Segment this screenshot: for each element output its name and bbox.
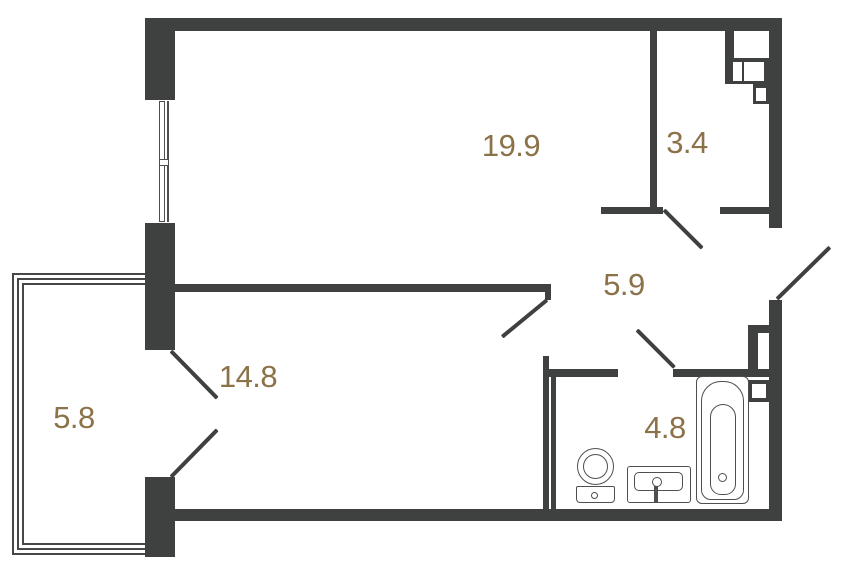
room-label-hallway: 5.9 [603,267,645,303]
wall-bottom [175,509,782,521]
shaft-opening-small-right [744,62,764,81]
bedroom-door-swing [501,298,548,338]
shaft-opening-large [734,31,769,58]
balcony-door-swing-lower [170,428,219,478]
shaft-box-lower-opening [756,88,766,101]
wall-duct-niche-left [748,333,758,369]
floor-plan: 19.9 3.4 5.9 14.8 5.8 4.8 [0,0,855,566]
wall-divider-livingroom-bedroom [175,284,551,292]
wall-right-upper [769,18,782,228]
room-label-storage: 3.4 [666,125,708,161]
room-label-balcony: 5.8 [53,400,95,436]
wall-stub-bedroom-door [545,284,551,300]
toilet-bowl-inner [583,454,608,479]
wall-bathroom-left-outer [543,356,549,509]
wall-hallway-top-right [720,207,769,214]
wall-left-bottom-block [145,477,175,557]
wall-top [145,18,782,31]
wall-left-top-block [145,18,175,100]
shaft-opening-small-left [733,62,742,81]
water-heater-opening [752,384,766,398]
wall-duct-niche-top [748,325,769,333]
window-mullion [159,159,169,166]
room-label-living-room: 19.9 [482,128,540,164]
wall-divider-livingroom-storage [650,31,657,213]
balcony-door-swing-upper [170,350,219,400]
wall-left-mid-block [145,223,175,350]
wall-hallway-top-left [601,207,663,214]
bathtub-drain [718,473,727,482]
wall-right-lower [769,300,782,521]
wall-bathroom-left-inner [551,371,556,509]
entrance-door-swing [776,246,832,301]
toilet-flush-button [591,492,598,499]
room-label-bathroom: 4.8 [644,410,686,446]
storage-door-swing [663,209,704,250]
sink-faucet [652,477,662,487]
wall-bathroom-top-left [549,369,618,377]
bathroom-door-swing [636,329,676,369]
room-label-bedroom: 14.8 [219,359,277,395]
